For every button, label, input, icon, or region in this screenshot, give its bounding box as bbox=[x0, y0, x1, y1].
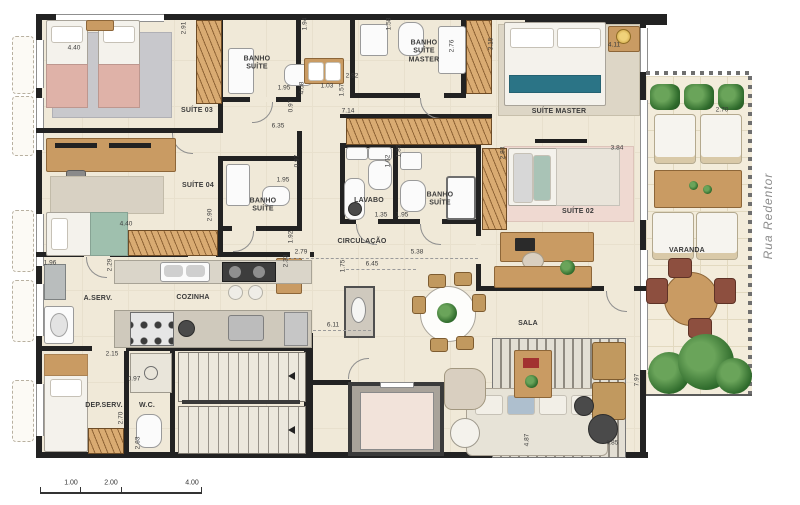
wall-suite03-suite04 bbox=[36, 128, 222, 133]
suite02-wardrobe bbox=[482, 148, 507, 230]
window-master-right bbox=[640, 28, 648, 72]
varanda-chair-3 bbox=[668, 258, 692, 278]
dim-label: 1.95 bbox=[396, 212, 409, 219]
window-left-3 bbox=[36, 214, 44, 266]
wall-banho04-left bbox=[218, 156, 223, 257]
varanda-lounge-2 bbox=[700, 114, 742, 164]
dining-chair-3 bbox=[412, 296, 426, 314]
kitchen-double-sink bbox=[160, 262, 210, 282]
sala-round-table-dark-2 bbox=[574, 396, 594, 416]
kitchen-stool-2 bbox=[248, 285, 263, 300]
window-left-2 bbox=[36, 98, 44, 150]
dim-label: 1.35 bbox=[375, 212, 388, 219]
wall-banho04-right bbox=[297, 131, 302, 231]
wall-banho04-top bbox=[222, 156, 302, 161]
dim-label: 2.92 bbox=[346, 73, 359, 80]
varanda-chair-1 bbox=[646, 278, 668, 304]
dim-label: 7.97 bbox=[634, 374, 641, 387]
suite02-sideboard bbox=[494, 266, 592, 288]
kitchen-cooktop bbox=[222, 262, 276, 282]
dim-label: 1.95 bbox=[277, 177, 290, 184]
dim-label: 4.08 bbox=[299, 82, 306, 95]
window-left-1 bbox=[36, 40, 44, 88]
window-left-4 bbox=[36, 284, 44, 336]
stairs-upper-flight bbox=[178, 352, 306, 402]
dim-label: 4.40 bbox=[68, 45, 81, 52]
sala-coffee-table bbox=[514, 350, 552, 398]
stairs-rail bbox=[182, 400, 300, 404]
dim-label: 2.90 bbox=[207, 209, 214, 222]
dim-label: 2.79 bbox=[295, 249, 308, 256]
varanda-lounge-1 bbox=[654, 114, 696, 164]
room-label-suite04: SUÍTE 04 bbox=[163, 182, 233, 190]
dim-label: 4.87 bbox=[524, 434, 531, 447]
shutter-1 bbox=[12, 36, 34, 94]
hall-towel-nook bbox=[304, 58, 344, 84]
dim-label: 2.63 bbox=[135, 437, 142, 450]
stairs-lower-flight bbox=[178, 406, 306, 454]
dim-label: 1.95 bbox=[278, 85, 291, 92]
dining-chair-4 bbox=[472, 294, 486, 312]
scale-label-3: 4.00 bbox=[185, 480, 199, 487]
street-label: Rua Redentor bbox=[761, 173, 775, 260]
room-label-wc: W.C. bbox=[127, 402, 167, 410]
dim-label: 2.15 bbox=[106, 351, 119, 358]
dim-label: 1.62 bbox=[385, 155, 392, 168]
room-label-aserv: A.SERV. bbox=[73, 295, 123, 303]
wall-right bbox=[640, 14, 646, 458]
varanda-chair-2 bbox=[714, 278, 736, 304]
room-label-suite02: SUÍTE 02 bbox=[543, 208, 613, 216]
room-label-banho-suite04: BANHO SUÍTE bbox=[244, 198, 282, 215]
dim-label: 1.58 bbox=[386, 18, 393, 31]
wall-hall-elevator bbox=[313, 380, 351, 385]
wall-banho-master-left bbox=[350, 14, 355, 98]
suite03-closet bbox=[196, 20, 222, 104]
suite04-closet bbox=[128, 230, 218, 256]
room-label-banho-master: BANHO SUÍTE MASTER bbox=[401, 39, 447, 64]
room-label-depserv: DEP.SERV. bbox=[74, 402, 134, 410]
suite04-desk bbox=[46, 138, 176, 172]
master-closet bbox=[466, 20, 492, 94]
suite03-bed-left bbox=[46, 20, 88, 108]
room-label-suite03: SUÍTE 03 bbox=[162, 107, 232, 115]
shutter-2 bbox=[12, 96, 34, 156]
floorplan-canvas: SUÍTE 03 BANHO SUÍTE BANHO SUÍTE MASTER … bbox=[0, 0, 800, 505]
varanda-hedge-2 bbox=[684, 84, 714, 110]
shutter-5 bbox=[12, 380, 34, 442]
scale-tick-1 bbox=[80, 487, 81, 494]
room-label-varanda: VARANDA bbox=[652, 247, 722, 255]
shutter-3 bbox=[12, 210, 34, 272]
lavabo-cabinet bbox=[346, 147, 368, 160]
room-label-suite-master: SUÍTE MASTER bbox=[514, 108, 604, 116]
dim-label: 1.75 bbox=[340, 260, 347, 273]
kitchen-pan bbox=[178, 320, 195, 337]
room-label-cozinha: COZINHA bbox=[163, 294, 223, 302]
dim-label: 7.14 bbox=[342, 108, 355, 115]
dining-chair-2 bbox=[454, 272, 472, 286]
master-bed bbox=[504, 22, 606, 106]
elevator-car bbox=[360, 392, 434, 450]
varanda-table bbox=[654, 170, 742, 208]
kitchen-fridge bbox=[284, 312, 308, 346]
corridor-closet-row bbox=[346, 118, 492, 145]
dim-label: 3.84 bbox=[611, 145, 624, 152]
room-label-circulacao: CIRCULAÇÃO bbox=[317, 238, 407, 246]
varanda-edge-bottom bbox=[646, 394, 752, 396]
dining-chair-5 bbox=[430, 338, 448, 352]
glass-door-suite02-varanda bbox=[640, 100, 648, 220]
stairs-arrow-up bbox=[288, 372, 295, 380]
banho-master-shower bbox=[360, 24, 388, 56]
dining-chair-6 bbox=[456, 336, 474, 350]
stairs-arrow-down bbox=[288, 426, 295, 434]
dim-label: 1.92 bbox=[288, 231, 295, 244]
door-gap-suite02 bbox=[476, 236, 481, 264]
scale-tick-0 bbox=[40, 487, 41, 494]
suite04-rug bbox=[50, 176, 164, 214]
room-label-banho-suite02: BANHO SUÍTE bbox=[421, 192, 459, 209]
shutter-4 bbox=[12, 280, 34, 342]
wc-shower bbox=[130, 353, 172, 393]
room-label-banho-suite03: BANHO SUÍTE bbox=[238, 56, 276, 73]
dim-label: 6.11 bbox=[327, 322, 339, 329]
scale-tick-3 bbox=[201, 487, 202, 494]
varanda-railing-top bbox=[646, 71, 752, 75]
room-label-lavabo: LAVABO bbox=[344, 197, 394, 205]
varanda-hedge-1 bbox=[650, 84, 680, 110]
dim-label: 2.70 bbox=[118, 412, 125, 425]
dim-label: 4.40 bbox=[120, 221, 133, 228]
window-left-5 bbox=[36, 384, 44, 436]
dim-label: 1.57 bbox=[339, 84, 346, 97]
dim-label: 1.96 bbox=[44, 260, 57, 267]
dim-label: 0.97 bbox=[288, 100, 295, 113]
dim-label: 6.35 bbox=[272, 123, 285, 130]
suite03-headboard-shelf bbox=[86, 20, 114, 31]
suite04-bed bbox=[46, 212, 128, 256]
dim-label: 3.15 bbox=[488, 38, 495, 51]
kitchen-stove bbox=[130, 312, 174, 346]
varanda-railing-right bbox=[748, 76, 752, 396]
sala-armchair bbox=[444, 368, 486, 410]
dim-label: 1.03 bbox=[321, 83, 334, 90]
scale-tick-2 bbox=[121, 487, 122, 494]
depserv-closet bbox=[88, 428, 124, 454]
suite02-bed bbox=[508, 148, 620, 206]
dim-label: 1.86 bbox=[396, 145, 403, 158]
kitchen-stool-1 bbox=[228, 285, 243, 300]
suite02-plant bbox=[560, 260, 575, 275]
suite03-bed-right bbox=[98, 20, 140, 108]
dim-label: 0.97 bbox=[294, 155, 301, 168]
dim-label: 5.38 bbox=[411, 249, 424, 256]
suite02-desk bbox=[500, 232, 594, 262]
room-label-sala: SALA bbox=[503, 320, 553, 328]
dim-label: 2.83 bbox=[500, 147, 507, 160]
kitchen-sink-2 bbox=[228, 315, 264, 341]
dim-label: 2.76 bbox=[449, 40, 456, 53]
dim-label: 4.85 bbox=[606, 440, 619, 447]
aserv-washer bbox=[44, 264, 66, 300]
sala-wood-chair-1 bbox=[592, 342, 626, 380]
dim-label: 2.91 bbox=[181, 22, 188, 35]
scale-label-1: 1.00 bbox=[64, 480, 78, 487]
suite02-tv bbox=[535, 139, 587, 143]
measure-line-circulacao bbox=[286, 258, 478, 259]
wall-banho-master-bottom bbox=[350, 93, 466, 98]
measure-line-circulacao-2 bbox=[346, 269, 416, 270]
aserv-tank bbox=[44, 306, 74, 344]
wall-suite02-left bbox=[476, 143, 481, 291]
measure-line-hall bbox=[313, 330, 371, 331]
dining-chair-1 bbox=[428, 274, 446, 288]
dim-label: 2.33 bbox=[283, 255, 290, 268]
elevator-door bbox=[380, 382, 414, 388]
dim-label: 0.97 bbox=[128, 376, 141, 383]
banho02-sink bbox=[400, 152, 422, 170]
glass-door-sala-varanda bbox=[640, 250, 648, 370]
scale-label-2: 2.00 bbox=[104, 480, 118, 487]
dining-centerpiece bbox=[437, 303, 457, 323]
dim-label: 2.70 bbox=[716, 107, 729, 114]
varanda-plant-3 bbox=[716, 358, 752, 394]
dim-label: 1.94 bbox=[302, 18, 309, 31]
sala-side-table bbox=[450, 418, 480, 448]
dim-label: 6.45 bbox=[366, 261, 379, 268]
dim-label: 4.11 bbox=[608, 42, 620, 49]
dim-label: 2.29 bbox=[107, 259, 114, 272]
